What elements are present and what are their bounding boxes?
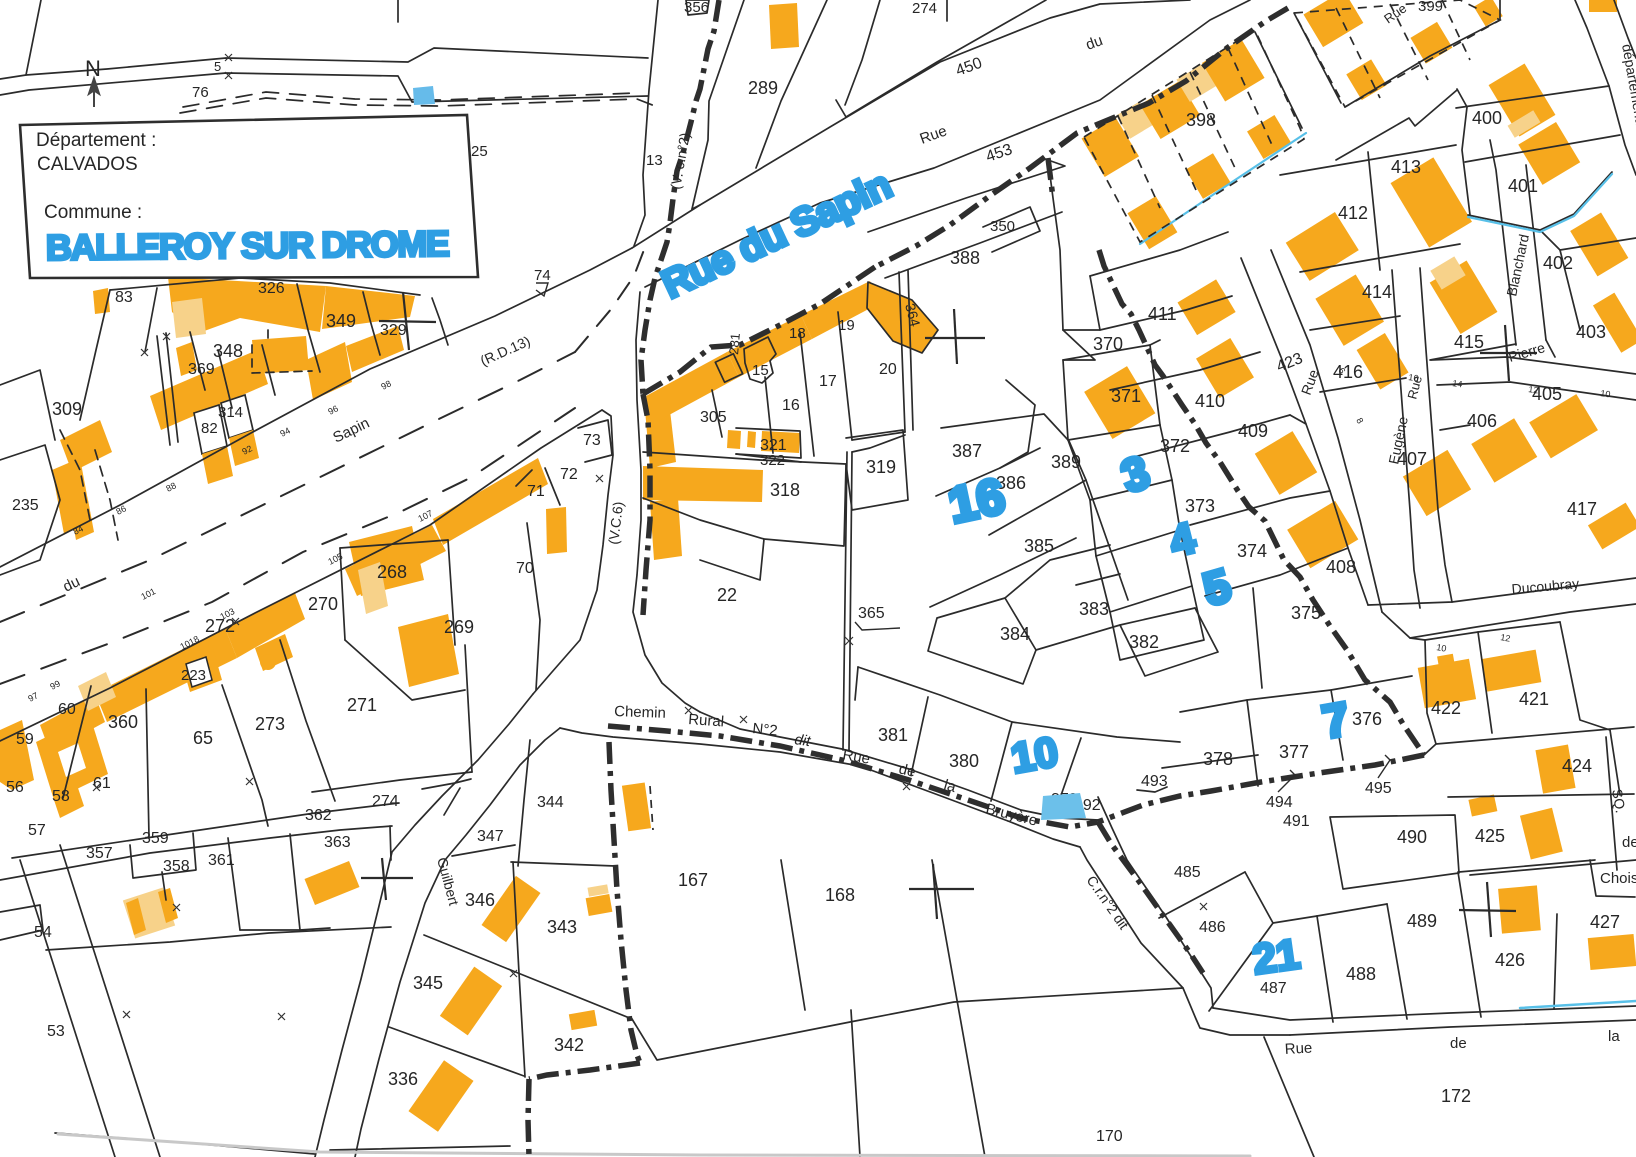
svg-text:281: 281 <box>726 332 743 355</box>
svg-text:421: 421 <box>1519 689 1549 709</box>
svg-text:384: 384 <box>1000 624 1030 644</box>
svg-text:424: 424 <box>1562 756 1592 776</box>
svg-text:22: 22 <box>717 585 737 605</box>
svg-text:326: 326 <box>258 280 285 297</box>
svg-text:408: 408 <box>1326 557 1356 577</box>
svg-text:Chois: Chois <box>1600 870 1636 887</box>
svg-text:172: 172 <box>1441 1086 1471 1106</box>
svg-text:314: 314 <box>218 404 243 421</box>
svg-text:168: 168 <box>825 885 855 905</box>
svg-text:309: 309 <box>52 399 82 419</box>
svg-text:273: 273 <box>255 714 285 734</box>
svg-text:369: 369 <box>188 361 215 378</box>
svg-text:5: 5 <box>214 59 221 74</box>
svg-text:274: 274 <box>912 0 937 17</box>
svg-text:389: 389 <box>1051 452 1081 472</box>
svg-text:19: 19 <box>838 317 855 334</box>
svg-text:495: 495 <box>1365 780 1392 797</box>
svg-text:376: 376 <box>1352 709 1382 729</box>
svg-text:361: 361 <box>208 852 235 869</box>
svg-text:493: 493 <box>1141 773 1168 790</box>
svg-text:426: 426 <box>1495 950 1525 970</box>
svg-text:272: 272 <box>205 616 235 636</box>
svg-text:485: 485 <box>1174 864 1201 881</box>
svg-text:25: 25 <box>471 143 488 160</box>
svg-text:358: 358 <box>163 858 190 875</box>
svg-text:372: 372 <box>1160 436 1190 456</box>
svg-text:58: 58 <box>52 788 70 805</box>
svg-text:167: 167 <box>678 870 708 890</box>
svg-text:427: 427 <box>1590 912 1620 932</box>
svg-text:378: 378 <box>1203 749 1233 769</box>
svg-text:347: 347 <box>477 828 504 845</box>
svg-text:16: 16 <box>944 467 1010 533</box>
svg-text:345: 345 <box>413 973 443 993</box>
svg-text:72: 72 <box>560 466 578 483</box>
svg-text:425: 425 <box>1475 826 1505 846</box>
svg-text:486: 486 <box>1199 919 1226 936</box>
svg-text:375: 375 <box>1291 603 1321 623</box>
svg-text:491: 491 <box>1283 813 1310 830</box>
svg-text:61: 61 <box>93 775 111 792</box>
svg-text:388: 388 <box>950 248 980 268</box>
svg-text:16: 16 <box>782 397 800 414</box>
svg-text:N°2: N°2 <box>752 720 779 740</box>
svg-text:357: 357 <box>86 845 113 862</box>
svg-text:18: 18 <box>789 325 806 342</box>
svg-text:12: 12 <box>1500 632 1512 644</box>
svg-text:365: 365 <box>858 605 885 622</box>
svg-text:380: 380 <box>949 751 979 771</box>
svg-text:346: 346 <box>465 890 495 910</box>
svg-text:363: 363 <box>324 834 351 851</box>
svg-text:235: 235 <box>12 497 39 514</box>
svg-text:83: 83 <box>115 289 133 306</box>
svg-text:362: 362 <box>305 807 332 824</box>
svg-text:398: 398 <box>1186 110 1216 130</box>
svg-text:382: 382 <box>1129 632 1159 652</box>
svg-text:385: 385 <box>1024 536 1054 556</box>
svg-text:13: 13 <box>646 152 663 169</box>
svg-text:17: 17 <box>819 373 837 390</box>
svg-text:371: 371 <box>1111 386 1141 406</box>
svg-text:494: 494 <box>1266 794 1293 811</box>
svg-text:410: 410 <box>1195 391 1225 411</box>
svg-text:374: 374 <box>1237 541 1267 561</box>
svg-text:82: 82 <box>201 420 218 437</box>
svg-text:318: 318 <box>770 480 800 500</box>
svg-text:336: 336 <box>388 1069 418 1089</box>
svg-text:21: 21 <box>1250 930 1303 983</box>
svg-text:53: 53 <box>47 1023 65 1040</box>
svg-text:417: 417 <box>1567 499 1597 519</box>
svg-text:73: 73 <box>583 432 601 449</box>
svg-text:de: de <box>1450 1035 1467 1052</box>
svg-text:271: 271 <box>347 695 377 715</box>
svg-text:373: 373 <box>1185 496 1215 516</box>
svg-text:60: 60 <box>58 701 76 718</box>
svg-text:268: 268 <box>377 562 407 582</box>
svg-text:10: 10 <box>1600 388 1611 399</box>
svg-text:65: 65 <box>193 728 213 748</box>
svg-text:de: de <box>1622 834 1636 851</box>
svg-text:76: 76 <box>192 84 209 101</box>
svg-text:349: 349 <box>326 311 356 331</box>
svg-text:348: 348 <box>213 341 243 361</box>
svg-text:400: 400 <box>1472 108 1502 128</box>
svg-text:Rue: Rue <box>1284 1040 1312 1058</box>
svg-text:381: 381 <box>878 725 908 745</box>
svg-text:359: 359 <box>142 830 169 847</box>
svg-text:Rural: Rural <box>688 711 725 730</box>
svg-text:406: 406 <box>1467 411 1497 431</box>
svg-text:343: 343 <box>547 917 577 937</box>
svg-text:54: 54 <box>34 924 52 941</box>
svg-text:377: 377 <box>1279 742 1309 762</box>
svg-text:10: 10 <box>1007 727 1061 781</box>
svg-text:344: 344 <box>537 794 564 811</box>
svg-text:415: 415 <box>1454 332 1484 352</box>
svg-text:409: 409 <box>1238 421 1268 441</box>
svg-text:223: 223 <box>181 667 206 684</box>
svg-text:350: 350 <box>990 218 1015 235</box>
svg-text:401: 401 <box>1508 176 1538 196</box>
svg-text:487: 487 <box>1260 980 1287 997</box>
svg-text:274: 274 <box>372 793 399 810</box>
svg-text:422: 422 <box>1431 698 1461 718</box>
svg-text:414: 414 <box>1362 282 1392 302</box>
svg-text:305: 305 <box>700 409 727 426</box>
svg-text:170: 170 <box>1096 1128 1123 1145</box>
svg-text:14: 14 <box>1452 378 1463 389</box>
svg-text:la: la <box>1608 1028 1620 1045</box>
svg-text:270: 270 <box>308 594 338 614</box>
svg-text:399: 399 <box>1418 0 1443 15</box>
svg-text:402: 402 <box>1543 253 1573 273</box>
svg-text:59: 59 <box>16 731 34 748</box>
svg-text:489: 489 <box>1407 911 1437 931</box>
svg-text:10: 10 <box>1436 642 1448 654</box>
svg-text:BALLEROY SUR DROME: BALLEROY SUR DROME <box>46 223 450 268</box>
svg-text:57: 57 <box>28 822 46 839</box>
svg-text:356: 356 <box>684 0 709 16</box>
svg-text:342: 342 <box>554 1035 584 1055</box>
svg-text:Département :: Département : <box>36 130 156 151</box>
svg-text:74: 74 <box>534 267 551 284</box>
svg-text:370: 370 <box>1093 334 1123 354</box>
svg-text:319: 319 <box>866 457 896 477</box>
svg-text:360: 360 <box>108 712 138 732</box>
svg-text:322: 322 <box>760 452 785 469</box>
svg-text:20: 20 <box>879 361 897 378</box>
svg-text:N: N <box>85 56 101 81</box>
svg-text:490: 490 <box>1397 827 1427 847</box>
svg-text:dit: dit <box>793 731 812 750</box>
svg-text:383: 383 <box>1079 599 1109 619</box>
svg-text:387: 387 <box>952 441 982 461</box>
svg-text:329: 329 <box>380 322 407 339</box>
svg-text:412: 412 <box>1338 203 1368 223</box>
svg-text:56: 56 <box>6 779 24 796</box>
svg-text:Commune :: Commune : <box>44 202 142 223</box>
svg-text:71: 71 <box>527 483 545 500</box>
svg-text:70: 70 <box>516 560 534 577</box>
svg-text:269: 269 <box>444 617 474 637</box>
svg-text:CALVADOS: CALVADOS <box>37 154 138 175</box>
svg-text:413: 413 <box>1391 157 1421 177</box>
svg-text:16: 16 <box>1408 372 1419 383</box>
svg-text:15: 15 <box>752 362 769 379</box>
svg-text:403: 403 <box>1576 322 1606 342</box>
svg-text:289: 289 <box>748 78 778 98</box>
svg-text:488: 488 <box>1346 964 1376 984</box>
svg-text:12: 12 <box>1528 384 1539 395</box>
svg-text:411: 411 <box>1148 304 1177 324</box>
svg-text:Chemin: Chemin <box>614 703 666 722</box>
